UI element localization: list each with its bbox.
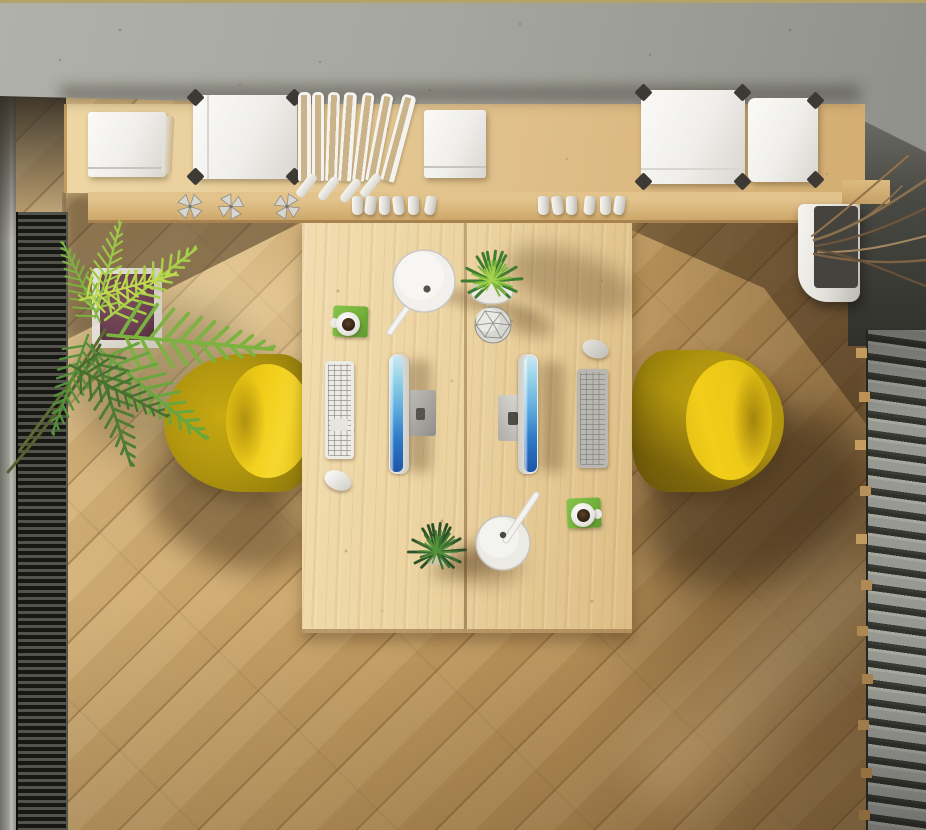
book (312, 92, 324, 181)
storage-box-a (641, 90, 745, 184)
wall-top-trim (0, 0, 926, 3)
paper-cup (613, 195, 627, 215)
books-row (298, 92, 408, 198)
plant-top (453, 233, 535, 311)
paper-cups-group (352, 196, 442, 218)
geo-ball (471, 303, 515, 347)
monitor-right-stand-hole (508, 412, 518, 425)
box-stack-small (424, 110, 486, 178)
paper-cup (352, 196, 363, 215)
dry-branches (786, 140, 926, 336)
monitor-right-screen (524, 356, 537, 472)
book (325, 92, 340, 181)
paper-cup (566, 196, 577, 215)
palm-plant (0, 150, 310, 480)
monitor-left-screen (390, 356, 403, 472)
keyboard-right-keys (580, 372, 605, 465)
lamp-bottom (468, 484, 560, 576)
box-lid-line (641, 168, 745, 170)
keyboard-left (325, 361, 354, 459)
paper-cup (600, 196, 611, 215)
mug-bottom-coffee (577, 509, 590, 522)
keyboard-right (577, 369, 608, 468)
box-stack-small-lip (424, 166, 486, 168)
paper-cup (408, 196, 419, 215)
chair-right-cushion (686, 360, 772, 480)
paper-cup (538, 196, 549, 215)
paper-cup (364, 195, 378, 215)
paper-cup (551, 195, 565, 215)
paper-cup (392, 195, 405, 215)
paper-cup (379, 196, 390, 215)
office-topdown-photo (0, 0, 926, 830)
slat-edge-notches (856, 348, 867, 358)
paper-cup (583, 195, 596, 215)
plant-bottom (403, 518, 475, 590)
paper-cups-group (538, 196, 628, 218)
chair-right (632, 350, 784, 492)
paper-cup (423, 195, 437, 216)
monitor-left-stand-hole (416, 408, 425, 420)
mug-top-coffee (342, 318, 355, 331)
slat-bench (866, 330, 926, 830)
keyboard-left-pad (330, 419, 348, 431)
keyboard-left-keys (328, 364, 351, 456)
